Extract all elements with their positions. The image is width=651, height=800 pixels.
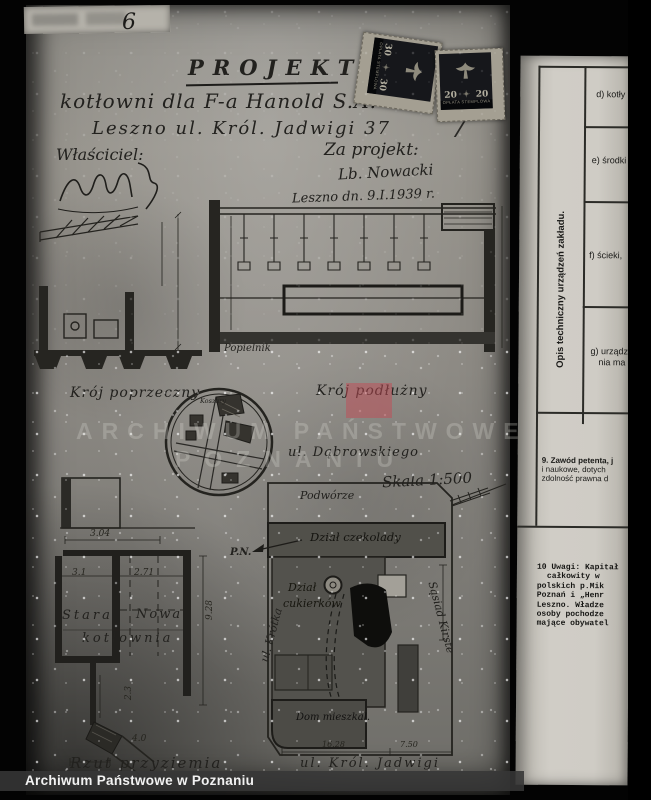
title-underline	[186, 82, 338, 87]
revenue-stamp-right: 20 ✦ 20 OPŁATA STEMPLOWA	[435, 48, 505, 122]
corner-number: 6	[122, 10, 136, 35]
revenue-stamp-left: 30 ✦ 30 OPŁATA STEMPLOWA	[353, 32, 442, 114]
archive-bar: Archiwum Państwowe w Poznaniu	[0, 771, 524, 791]
form-item9-line: zdolność prawna d	[542, 474, 628, 484]
drawing-sheet: PROJEKT kotłowni dla F-a Hanold S.A. Les…	[26, 5, 510, 795]
author-signature: Lb. Nowacki	[338, 161, 434, 184]
dim-right-span: 2.71	[134, 568, 154, 578]
form-item10-line: całkowity w	[547, 572, 629, 582]
faint-stamp-smudge	[32, 13, 78, 26]
stamp-caption: OPŁATA STEMPLOWA	[441, 99, 493, 110]
eagle-icon	[452, 58, 479, 85]
ground-plan-drawing	[30, 470, 282, 780]
faint-stamp-smudge	[86, 12, 126, 26]
house-label: Dom mieszkal.	[296, 712, 370, 723]
courtyard-label: Podwórze	[300, 489, 354, 502]
old-boiler-label-1: Stara	[62, 608, 113, 623]
dim-lower: 2.3	[124, 686, 134, 700]
archive-bar-text: Archiwum Państwowe w Poznaniu	[0, 771, 524, 791]
form-item10-line: Poznań i „Henr	[537, 591, 629, 601]
form-item10-line: mające obywatel	[537, 619, 629, 629]
watermark-accent-square	[346, 383, 392, 418]
form-item10: 10 Uwagi: Kapitał całkowity w polskich p…	[537, 563, 629, 629]
form-cell-f: f) ścieki,	[589, 250, 622, 260]
form-item9: 9. Zawód petenta, j i naukowe, dotych zd…	[542, 456, 628, 484]
table-border-left	[535, 66, 540, 526]
table-row-line	[583, 306, 631, 308]
form-cell-g: g) urządze-	[590, 346, 632, 356]
dim-bottom: 4.0	[132, 734, 146, 744]
new-boiler-label: Nowa	[136, 607, 182, 622]
candy-dept-label-2: cukierków	[283, 597, 341, 610]
north-marker: P.N.	[230, 547, 251, 558]
dim-left-span: 3.1	[72, 568, 86, 578]
site-plan-drawing	[248, 470, 510, 782]
ground-plan-label: Rzut przyziemia	[70, 754, 222, 772]
drawing-title: PROJEKT	[188, 55, 362, 80]
top-left-page-edge	[24, 5, 170, 34]
form-page: Opis techniczny urządzeń zakładu. d) kot…	[515, 56, 632, 786]
old-boiler-label-2: kotłownia	[82, 631, 173, 646]
form-vertical-header: Opis techniczny urządzeń zakładu.	[554, 79, 568, 499]
section-rule	[517, 526, 629, 529]
dim-top: 3.04	[90, 529, 110, 539]
chocolate-dept-label: Dział czekolady	[310, 530, 401, 544]
street-bottom-label: ul. Król. Jadwigi	[300, 756, 440, 771]
form-cell-g2: nia ma	[598, 357, 625, 367]
table-border-bottom	[536, 412, 630, 415]
eagle-icon	[399, 56, 428, 85]
form-cell-d: d) kotły	[596, 89, 625, 99]
drawing-subtitle-2: Leszno ul. Król. Jadwigi 37	[92, 118, 391, 139]
dim-height: 9.28	[205, 600, 215, 620]
author-label: Za projekt:	[324, 140, 419, 160]
scanner-black-band	[628, 0, 651, 800]
scanned-archive-page: PROJEKT kotłowni dla F-a Hanold S.A. Les…	[0, 0, 651, 800]
site-dim-side: 7.50	[400, 740, 418, 749]
table-row-line	[584, 201, 632, 203]
form-cell-e: e) środki	[592, 155, 627, 165]
table-row-line	[584, 126, 632, 128]
site-dim-main: 16.28	[322, 740, 345, 749]
candy-dept-label-1: Dział	[288, 581, 316, 594]
inset-label: Koszary	[200, 397, 226, 405]
drawing-subtitle-1: kotłowni dla F-a Hanold S.A.	[60, 89, 377, 113]
table-divider	[582, 66, 586, 424]
street-top-label: ul. Dąbrowskiego	[288, 445, 419, 460]
ash-pit-label: Popielnik	[224, 343, 271, 354]
